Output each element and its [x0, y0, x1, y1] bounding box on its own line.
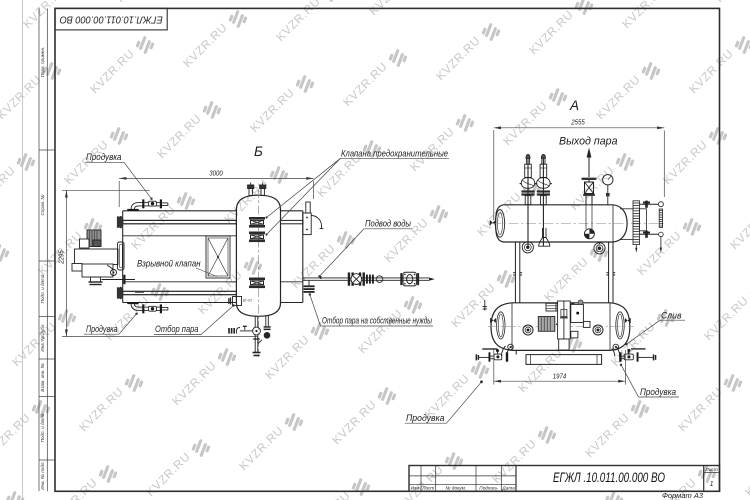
- svg-text:Б: Б: [254, 144, 263, 159]
- svg-text:Отбор пара: Отбор пара: [155, 324, 199, 335]
- svg-text:ЕГ-01: ЕГ-01: [243, 299, 252, 303]
- svg-text:Инв. № дубл.: Инв. № дубл.: [40, 323, 45, 351]
- svg-text:1974: 1974: [553, 372, 567, 381]
- svg-text:2295: 2295: [57, 250, 66, 265]
- svg-text:Продувка: Продувка: [86, 152, 122, 163]
- svg-text:ЕГЖЛ.10.011.00.000 ВО: ЕГЖЛ.10.011.00.000 ВО: [60, 13, 163, 25]
- svg-text:Продувка: Продувка: [86, 324, 118, 335]
- svg-text:2555: 2555: [570, 117, 585, 126]
- svg-text:Подпись: Подпись: [479, 486, 498, 491]
- svg-text:Подвод воды: Подвод воды: [365, 218, 411, 229]
- svg-text:№ докум.: № докум.: [445, 486, 466, 491]
- svg-text:Инв. № подл.: Инв. № подл.: [40, 461, 45, 490]
- svg-text:Выход пара: Выход пара: [559, 135, 618, 147]
- svg-text:Отбор пара на собственные нужд: Отбор пара на собственные нужды: [322, 315, 432, 326]
- svg-text:Перв. примен.: Перв. примен.: [40, 47, 45, 78]
- svg-text:Справ. №: Справ. №: [40, 195, 45, 216]
- svg-text:Продувка: Продувка: [406, 413, 445, 424]
- svg-text:Подп. и дата: Подп. и дата: [40, 413, 45, 442]
- svg-text:3000: 3000: [209, 169, 223, 178]
- svg-text:1: 1: [710, 481, 714, 488]
- svg-text:Взрывной клапан: Взрывной клапан: [137, 259, 201, 270]
- svg-text:Клапана предохранительные: Клапана предохранительные: [341, 148, 448, 159]
- svg-text:Дата: Дата: [501, 486, 515, 491]
- svg-text:Лист: Лист: [421, 486, 434, 491]
- svg-text:Продувка: Продувка: [640, 387, 676, 398]
- svg-text:Изм: Изм: [411, 486, 420, 491]
- svg-text:Взам. инв. №: Взам. инв. №: [40, 363, 45, 391]
- svg-text:ЕГЖЛ .10.011.00.000 ВО: ЕГЖЛ .10.011.00.000 ВО: [553, 470, 665, 485]
- svg-text:Лист: Лист: [704, 467, 717, 473]
- svg-text:А: А: [569, 98, 579, 113]
- svg-text:Формат А3: Формат А3: [662, 491, 704, 500]
- svg-text:Подп. и дата: Подп. и дата: [40, 274, 45, 303]
